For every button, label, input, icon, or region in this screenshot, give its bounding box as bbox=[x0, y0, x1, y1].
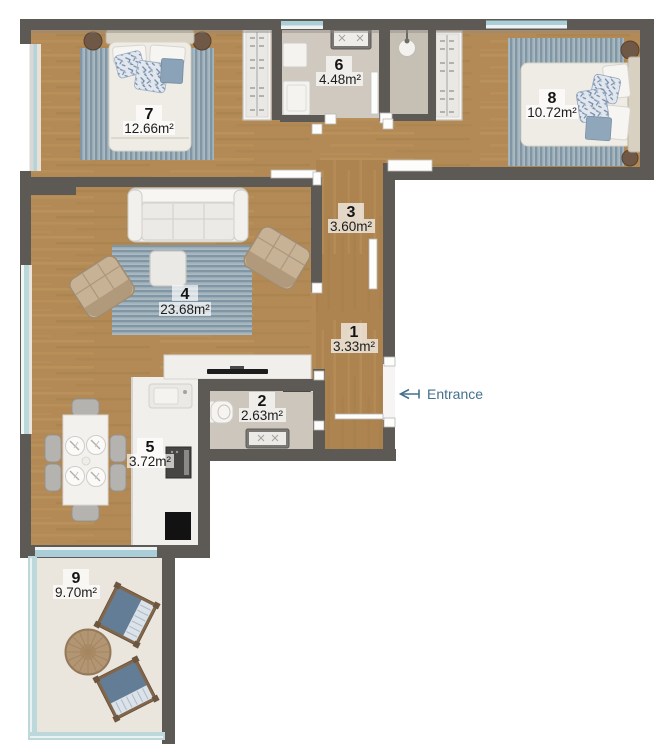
svg-text:12.66m²: 12.66m² bbox=[124, 121, 174, 136]
svg-text:3.60m²: 3.60m² bbox=[330, 219, 373, 234]
svg-text:10.72m²: 10.72m² bbox=[527, 105, 577, 120]
svg-text:23.68m²: 23.68m² bbox=[160, 302, 210, 317]
svg-text:2.63m²: 2.63m² bbox=[241, 408, 284, 423]
svg-text:Entrance: Entrance bbox=[427, 386, 483, 402]
svg-text:9.70m²: 9.70m² bbox=[55, 585, 98, 600]
svg-text:4: 4 bbox=[181, 286, 190, 303]
svg-text:4.48m²: 4.48m² bbox=[319, 72, 362, 87]
svg-text:3.72m²: 3.72m² bbox=[129, 454, 172, 469]
svg-text:3.33m²: 3.33m² bbox=[333, 339, 376, 354]
